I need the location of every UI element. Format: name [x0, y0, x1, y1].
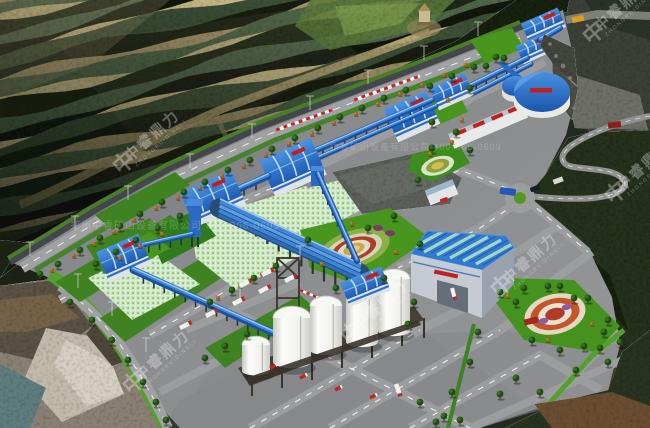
svg-text:中睿矿山设备有限公司 400-006-0609: 中睿矿山设备有限公司 400-006-0609: [330, 141, 502, 152]
svg-text:郑州中睿矿山设备有限公司 400-006-0609: 郑州中睿矿山设备有限公司 400-006-0609: [70, 219, 280, 232]
